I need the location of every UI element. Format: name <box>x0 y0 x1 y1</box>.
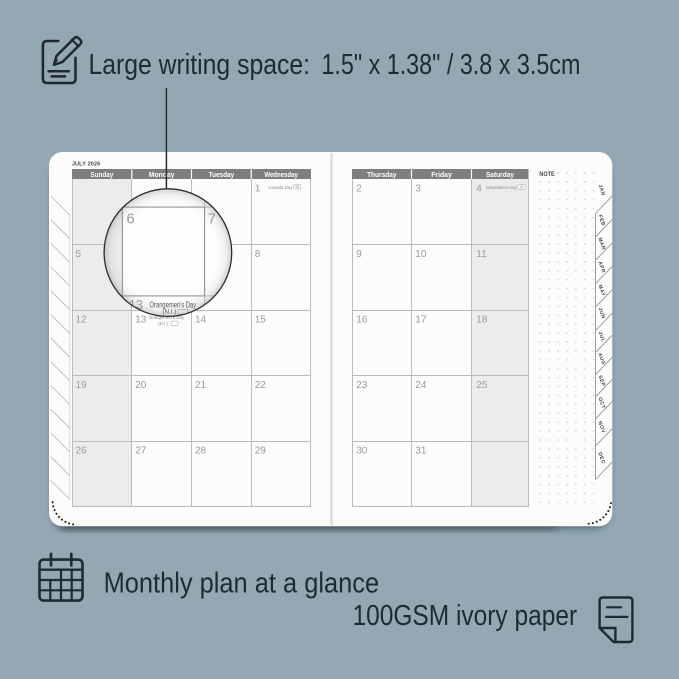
svg-text:5: 5 <box>76 249 82 260</box>
svg-text:29: 29 <box>255 446 267 457</box>
svg-text:1.5" x 1.38" / 3.8 x 3.5cm: 1.5" x 1.38" / 3.8 x 3.5cm <box>321 49 580 81</box>
svg-text:Friday: Friday <box>431 170 452 179</box>
svg-text:3: 3 <box>415 183 421 194</box>
svg-text:31: 31 <box>415 446 427 457</box>
svg-text:Tuesday: Tuesday <box>209 170 235 179</box>
svg-text:Large writing space:: Large writing space: <box>89 49 311 81</box>
svg-text:27: 27 <box>135 446 147 457</box>
svg-text:8: 8 <box>255 249 261 260</box>
svg-text:22: 22 <box>255 380 267 391</box>
svg-text:30: 30 <box>356 446 368 457</box>
svg-text:NOTE: NOTE <box>539 171 555 178</box>
svg-text:18: 18 <box>476 315 488 326</box>
svg-text:Canada Day: Canada Day <box>268 185 293 190</box>
svg-text:20: 20 <box>135 380 147 391</box>
svg-text:Monday: Monday <box>149 170 175 179</box>
svg-text:10: 10 <box>415 249 427 260</box>
svg-text:100GSM ivory paper: 100GSM ivory paper <box>353 600 578 632</box>
svg-text:2: 2 <box>356 183 362 194</box>
svg-text:14: 14 <box>195 315 207 326</box>
svg-text:19: 19 <box>76 380 88 391</box>
svg-text:Thursday: Thursday <box>367 170 397 179</box>
svg-text:Sunday: Sunday <box>90 170 114 179</box>
svg-text:15: 15 <box>255 315 267 326</box>
svg-text:JULY 2026: JULY 2026 <box>72 162 101 168</box>
svg-text:Monthly plan at a glance: Monthly plan at a glance <box>104 567 380 599</box>
svg-text:23: 23 <box>356 380 368 391</box>
svg-text:Independence Day: Independence Day <box>486 185 518 190</box>
svg-text:17: 17 <box>415 315 427 326</box>
svg-text:24: 24 <box>415 380 427 391</box>
svg-text:25: 25 <box>476 380 488 391</box>
svg-text:Wednesday: Wednesday <box>264 170 298 179</box>
svg-text:26: 26 <box>76 446 88 457</box>
svg-text:13: 13 <box>135 315 147 326</box>
svg-text:16: 16 <box>356 315 368 326</box>
svg-text:28: 28 <box>195 446 207 457</box>
svg-text:21: 21 <box>195 380 207 391</box>
svg-text:9: 9 <box>356 249 362 260</box>
svg-text:4: 4 <box>476 183 482 194</box>
svg-text:12: 12 <box>76 315 88 326</box>
svg-text:Saturday: Saturday <box>486 170 515 179</box>
svg-text:(N.I.): (N.I.) <box>158 321 168 326</box>
svg-text:1: 1 <box>255 183 261 194</box>
svg-text:11: 11 <box>476 249 487 260</box>
